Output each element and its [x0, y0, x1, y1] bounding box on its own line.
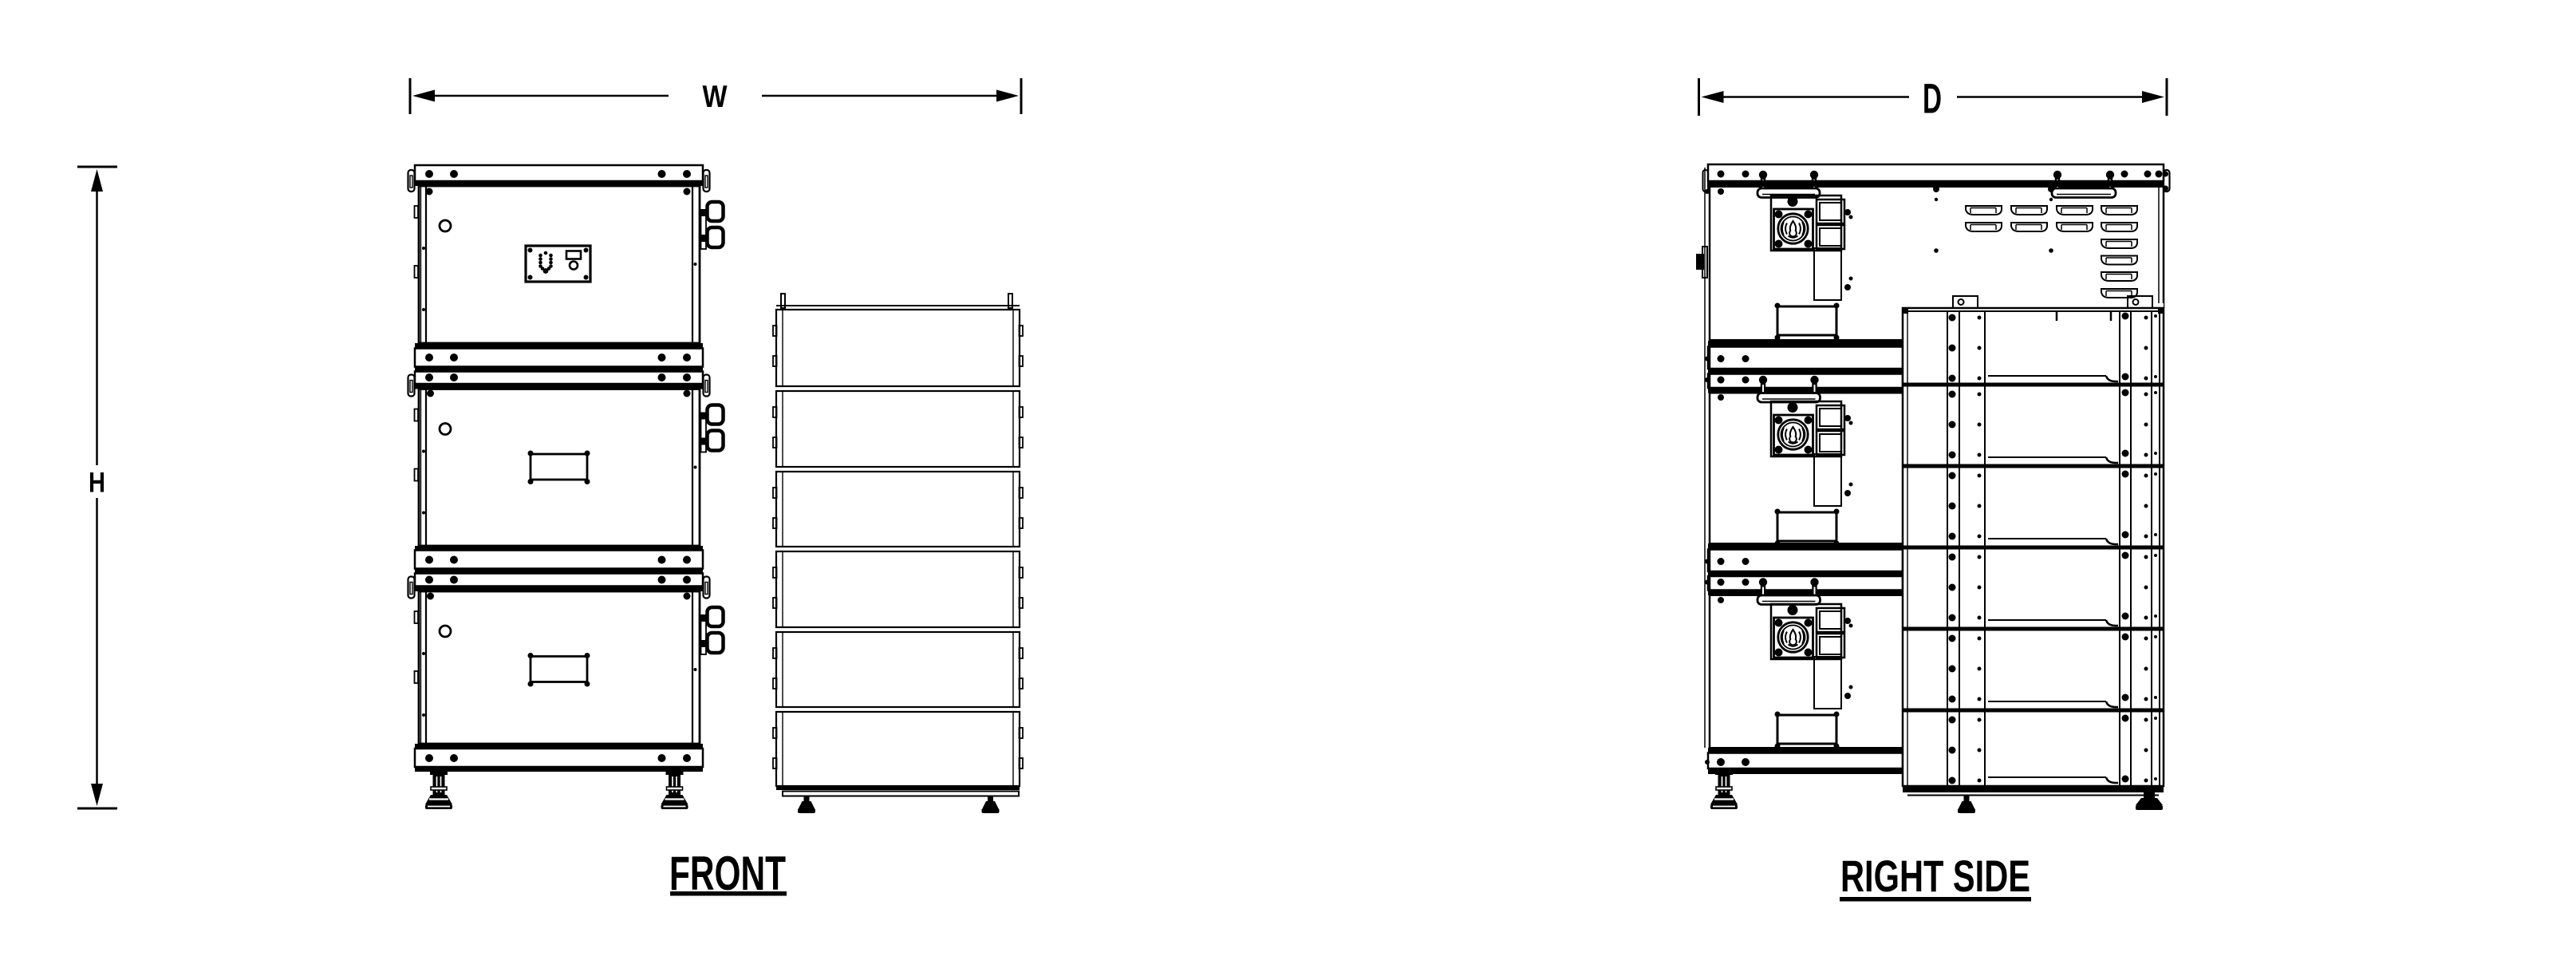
svg-text:H: H	[89, 468, 105, 499]
svg-text:D: D	[1923, 76, 1942, 123]
svg-text:RIGHT SIDE: RIGHT SIDE	[1840, 851, 2030, 901]
svg-text:W: W	[703, 80, 728, 114]
